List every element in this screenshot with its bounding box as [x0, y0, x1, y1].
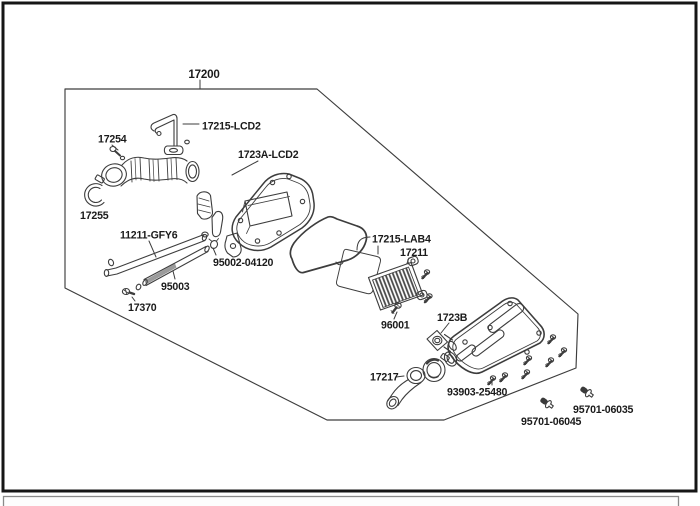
callout-17215-lcd2: 17215-LCD2 [202, 121, 261, 133]
callout-95002-04120: 95002-04120 [213, 257, 274, 269]
footer-strip [4, 497, 679, 506]
parts-catalog-page: 17200 17215-LCD2 17254 1723A-LCD2 17255 … [0, 0, 700, 506]
callout-1723a-lcd2: 1723A-LCD2 [238, 149, 299, 161]
callout-11211-gfy6: 11211-GFY6 [120, 230, 178, 242]
callout-1723b: 1723B [437, 312, 468, 324]
callout-93903-25480: 93903-25480 [447, 387, 508, 399]
callout-17215-lab4: 17215-LAB4 [372, 234, 431, 246]
callout-17370: 17370 [128, 302, 157, 314]
callout-17211: 17211 [400, 247, 428, 259]
callout-17255: 17255 [80, 210, 109, 222]
callout-95701-06035: 95701-06035 [573, 404, 634, 416]
page-border [3, 3, 696, 491]
callout-17200: 17200 [188, 68, 219, 81]
callout-17217: 17217 [370, 372, 399, 384]
callout-95003: 95003 [161, 281, 190, 293]
callout-95701-06045: 95701-06045 [521, 416, 582, 428]
callout-17254: 17254 [98, 134, 127, 146]
callout-96001: 96001 [381, 320, 410, 332]
exploded-diagram-canvas: 17200 17215-LCD2 17254 1723A-LCD2 17255 … [0, 0, 700, 506]
